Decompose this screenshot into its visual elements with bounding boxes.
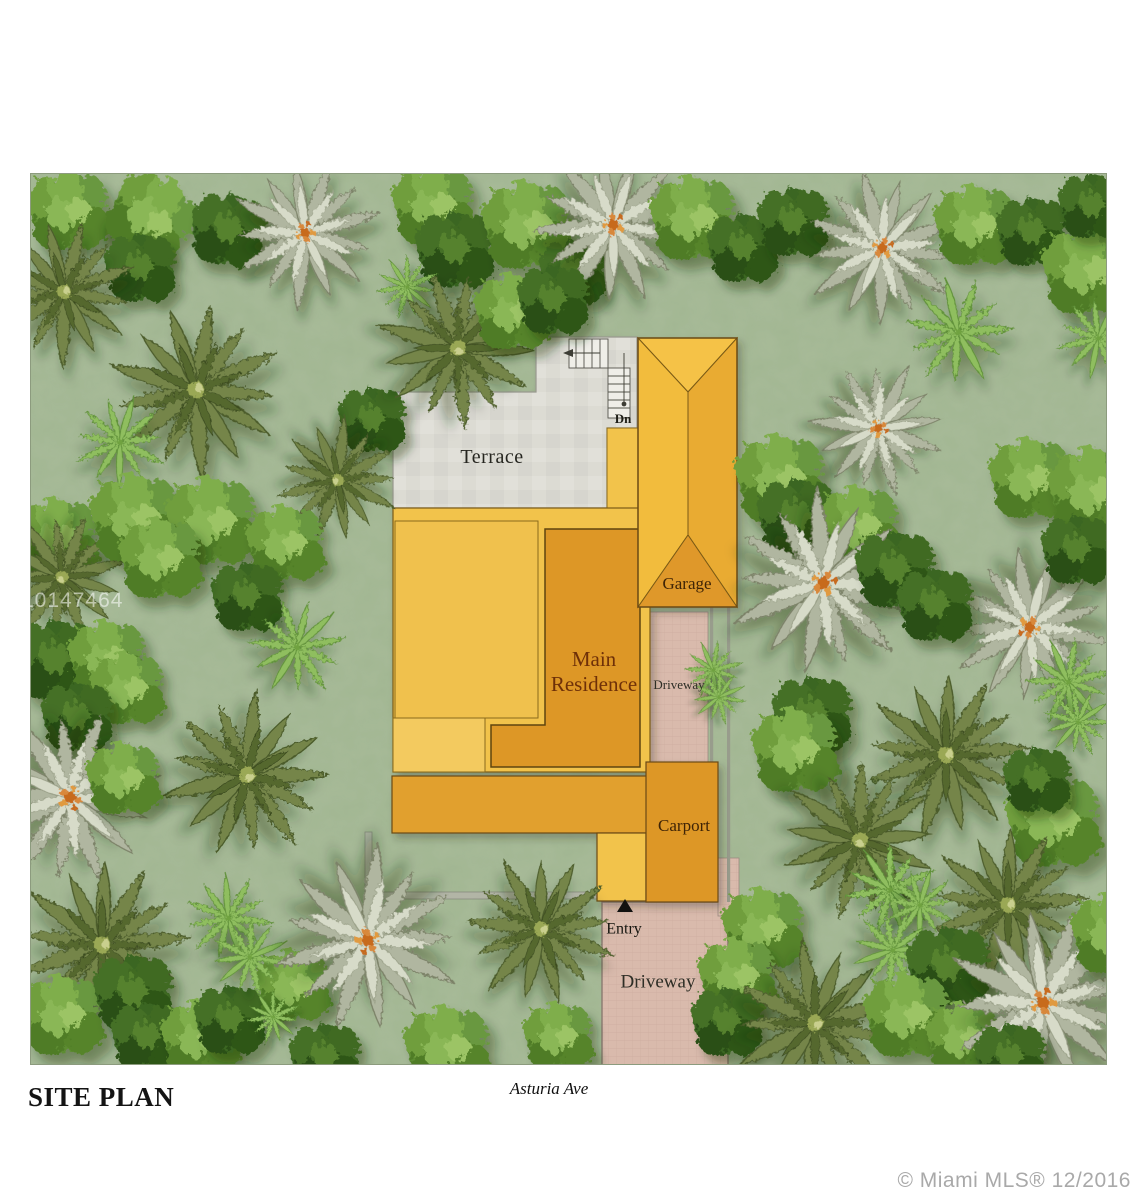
carport-label: Carport xyxy=(658,816,710,836)
site-plan-page: Terrace Dn Garage Main Residence Drivewa… xyxy=(0,0,1135,1200)
garage-building xyxy=(638,338,737,607)
garage-label: Garage xyxy=(662,574,711,594)
terrace-label: Terrace xyxy=(460,445,523,469)
driveway-front-label: Driveway xyxy=(621,972,696,995)
main-residence-label: Main Residence xyxy=(534,647,654,697)
entry-label: Entry xyxy=(606,919,642,938)
site-plan-drawing xyxy=(0,0,1135,1200)
mls-credit: © Miami MLS® 12/2016 xyxy=(897,1169,1131,1193)
mls-watermark: A10147464 xyxy=(7,589,123,613)
street-name-label: Asturia Ave xyxy=(510,1079,589,1099)
page-title: SITE PLAN xyxy=(28,1082,174,1113)
stair-down-label: Dn xyxy=(615,411,632,427)
driveway-side-label: Driveway xyxy=(653,677,704,693)
